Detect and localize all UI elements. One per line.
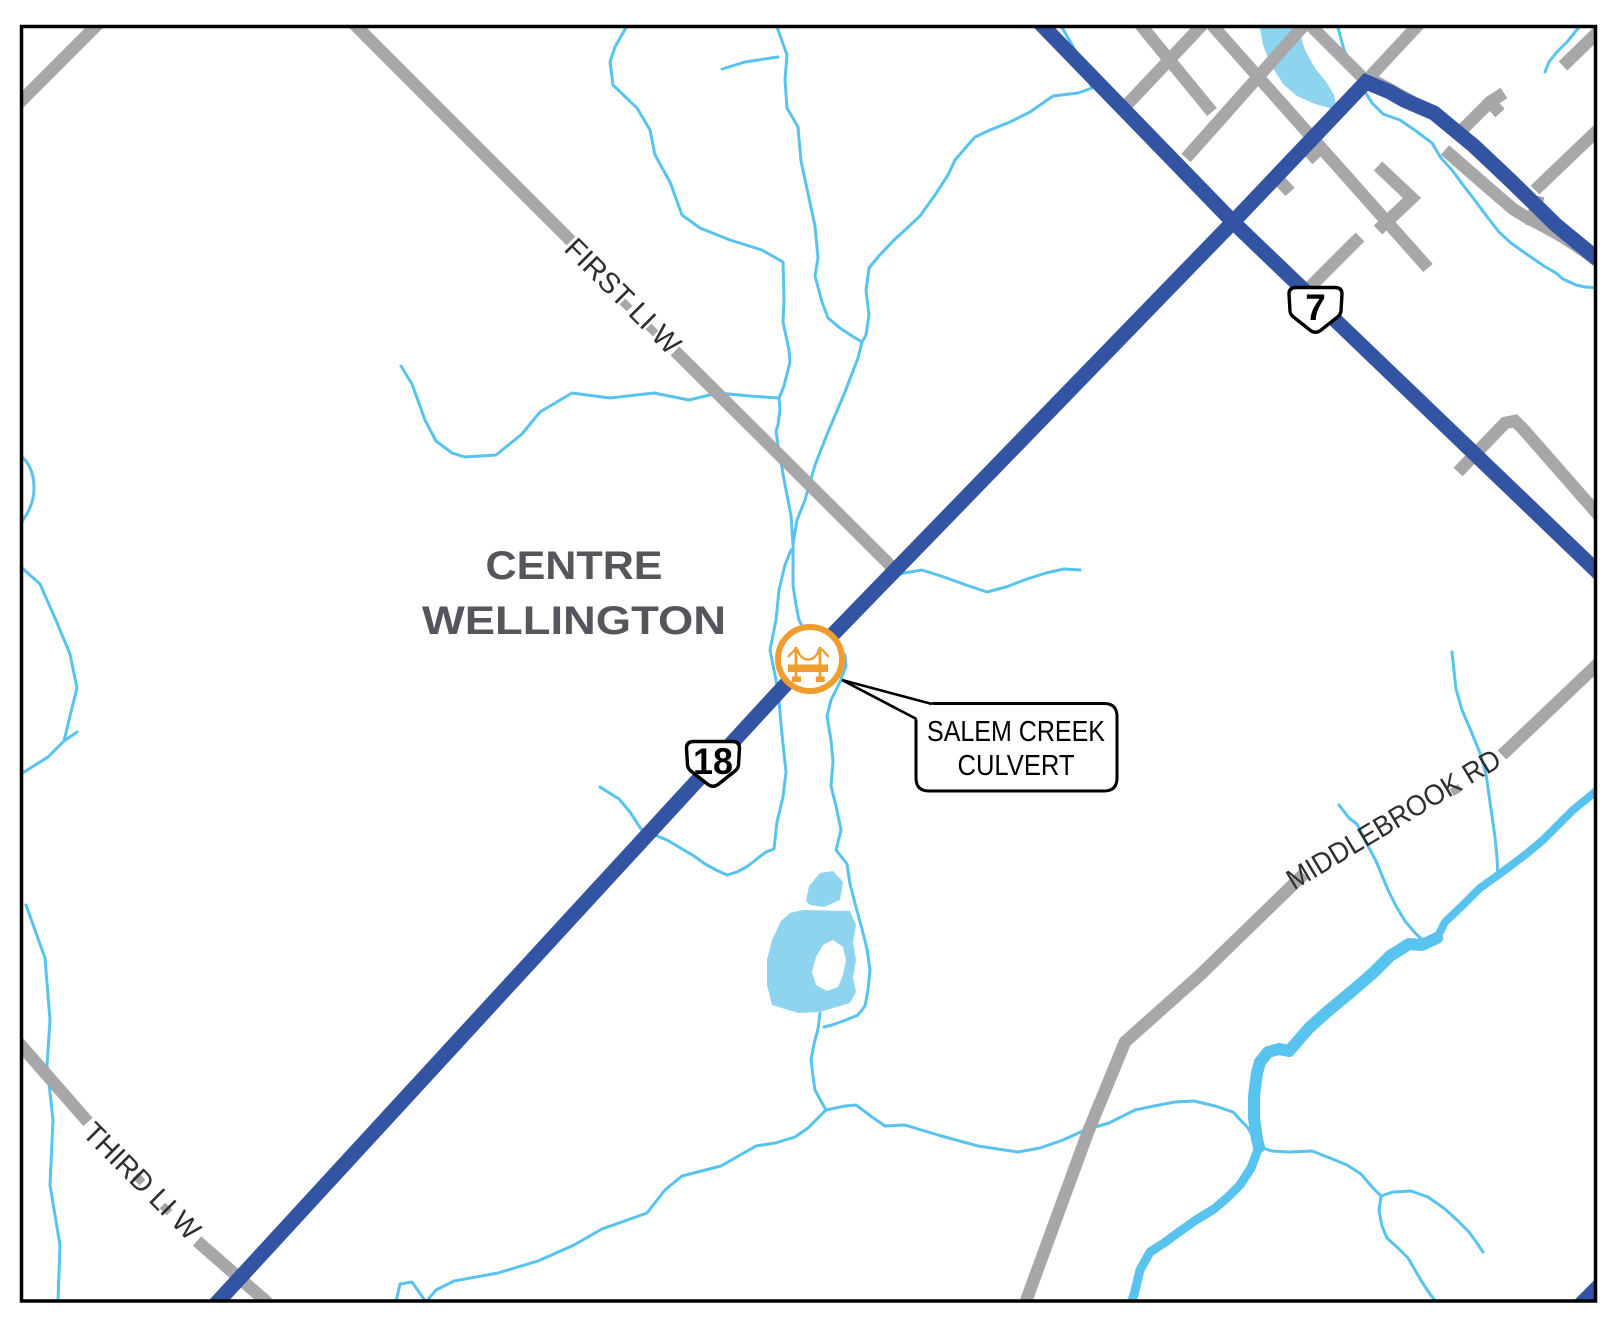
svg-text:CULVERT: CULVERT [958, 750, 1075, 782]
svg-text:SALEM CREEK: SALEM CREEK [927, 716, 1106, 748]
svg-text:7: 7 [1305, 287, 1326, 328]
svg-text:18: 18 [693, 741, 733, 782]
svg-text:WELLINGTON: WELLINGTON [422, 599, 726, 643]
svg-text:CENTRE: CENTRE [486, 544, 663, 588]
